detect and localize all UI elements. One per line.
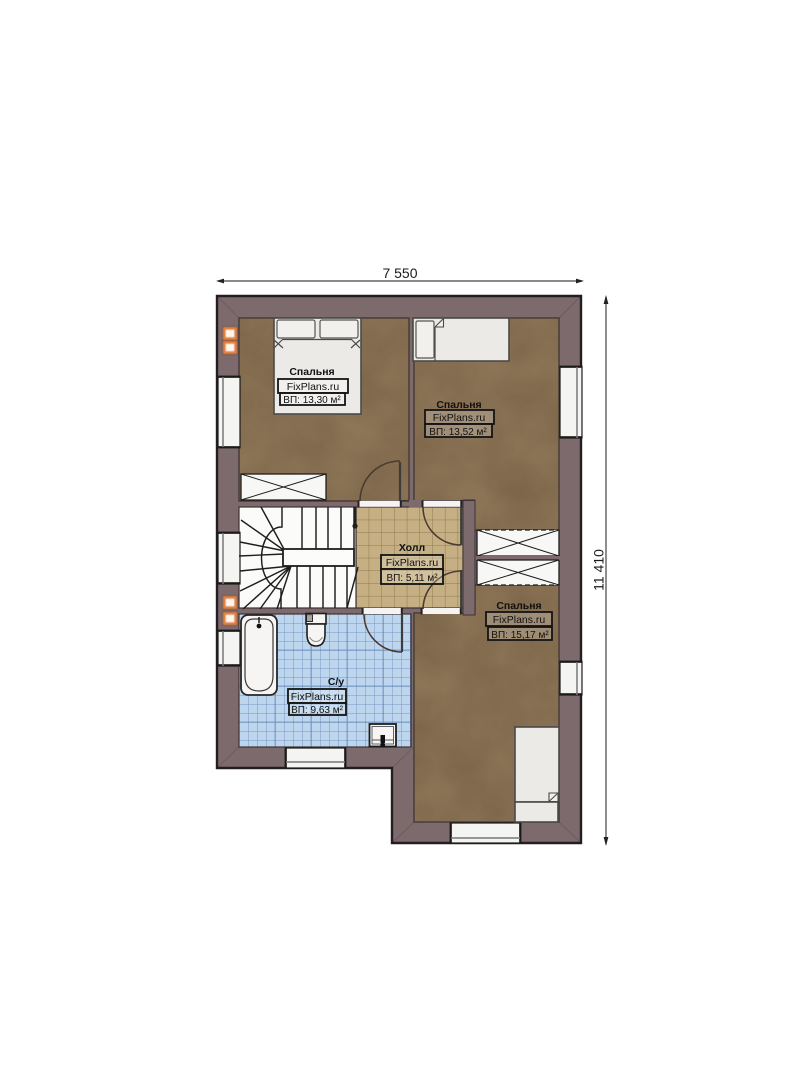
svg-text:Спальня: Спальня: [289, 366, 334, 378]
svg-text:FixPlans.ru: FixPlans.ru: [493, 614, 546, 626]
svg-text:ВП: 5,11 м²: ВП: 5,11 м²: [386, 573, 438, 584]
svg-text:ВП: 13,30 м²: ВП: 13,30 м²: [283, 395, 341, 406]
svg-text:FixPlans.ru: FixPlans.ru: [291, 691, 344, 703]
svg-text:7 550: 7 550: [382, 265, 417, 281]
svg-text:С/у: С/у: [328, 676, 345, 688]
svg-text:FixPlans.ru: FixPlans.ru: [287, 381, 340, 393]
svg-text:ВП: 15,17 м²: ВП: 15,17 м²: [491, 630, 549, 641]
svg-text:Холл: Холл: [399, 542, 425, 554]
svg-text:ВП: 9,63 м²: ВП: 9,63 м²: [291, 705, 344, 716]
svg-text:Спальня: Спальня: [496, 600, 541, 612]
svg-text:FixPlans.ru: FixPlans.ru: [433, 412, 486, 424]
svg-text:ВП: 13,52 м²: ВП: 13,52 м²: [429, 427, 487, 438]
svg-text:11 410: 11 410: [591, 549, 607, 591]
svg-text:FixPlans.ru: FixPlans.ru: [386, 557, 439, 569]
